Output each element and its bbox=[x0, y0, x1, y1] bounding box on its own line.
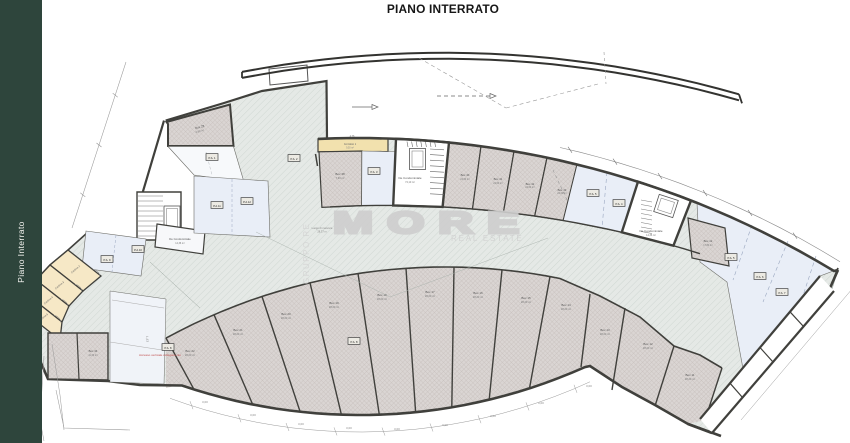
svg-text:3,00: 3,00 bbox=[298, 422, 304, 426]
svg-text:28,20 m²: 28,20 m² bbox=[643, 346, 653, 350]
svg-text:74,10 m²: 74,10 m² bbox=[405, 181, 415, 184]
svg-text:Box 22: Box 22 bbox=[185, 349, 195, 353]
svg-text:GRUPPO RE: GRUPPO RE bbox=[302, 222, 311, 284]
svg-text:De Condominiale: De Condominiale bbox=[169, 237, 191, 241]
svg-text:Box 21: Box 21 bbox=[233, 328, 243, 332]
svg-text:Box 12: Box 12 bbox=[643, 342, 653, 346]
svg-text:3,00: 3,00 bbox=[202, 400, 208, 404]
svg-text:1,43: 1,43 bbox=[145, 336, 150, 343]
svg-text:3,00: 3,00 bbox=[538, 401, 544, 405]
svg-text:28,20 m²: 28,20 m² bbox=[685, 377, 695, 381]
svg-text:Box 12: Box 12 bbox=[704, 239, 713, 243]
svg-text:28,20 m²: 28,20 m² bbox=[233, 332, 243, 336]
svg-text:3,00: 3,00 bbox=[250, 413, 256, 417]
svg-text:P.A. 7: P.A. 7 bbox=[779, 291, 786, 295]
svg-text:24,60 m²: 24,60 m² bbox=[460, 178, 470, 181]
svg-text:28,20 m²: 28,20 m² bbox=[329, 305, 339, 309]
svg-text:Corridoio 1: Corridoio 1 bbox=[344, 143, 357, 146]
svg-text:24,60 m²: 24,60 m² bbox=[557, 192, 567, 195]
svg-text:4,76: 4,76 bbox=[350, 135, 355, 138]
svg-text:Box 16: Box 16 bbox=[473, 291, 483, 295]
svg-text:Box 15: Box 15 bbox=[521, 296, 531, 300]
svg-text:P.A. 2: P.A. 2 bbox=[291, 157, 298, 161]
svg-text:28,20 m²: 28,20 m² bbox=[377, 297, 387, 301]
svg-text:14,36 m²: 14,36 m² bbox=[175, 242, 185, 245]
svg-text:3,00: 3,00 bbox=[586, 384, 592, 388]
svg-text:Box 14: Box 14 bbox=[561, 303, 571, 307]
svg-text:11,30 m²: 11,30 m² bbox=[88, 354, 97, 357]
svg-text:P.A. 5: P.A. 5 bbox=[590, 192, 597, 196]
svg-text:28,20 m²: 28,20 m² bbox=[185, 353, 195, 357]
svg-text:P.A. 4: P.A. 4 bbox=[616, 202, 623, 206]
svg-text:14,36 m²: 14,36 m² bbox=[646, 234, 656, 237]
svg-text:Box 41: Box 41 bbox=[494, 177, 503, 181]
svg-text:Luogo di manovra: Luogo di manovra bbox=[312, 226, 333, 230]
svg-text:28,20 m²: 28,20 m² bbox=[600, 332, 610, 336]
svg-text:P.A. 8: P.A. 8 bbox=[165, 346, 172, 350]
svg-text:7,90 m²: 7,90 m² bbox=[336, 176, 345, 180]
svg-text:P.A. 5: P.A. 5 bbox=[728, 256, 735, 260]
svg-text:P.A. 8: P.A. 8 bbox=[351, 340, 358, 344]
svg-text:28,20 m²: 28,20 m² bbox=[473, 295, 483, 299]
svg-text:Box 11: Box 11 bbox=[685, 373, 694, 377]
svg-text:3,00: 3,00 bbox=[394, 427, 400, 431]
svg-text:Box 19: Box 19 bbox=[329, 301, 339, 305]
svg-text:De Condominiale: De Condominiale bbox=[398, 176, 421, 180]
svg-text:Box 17: Box 17 bbox=[425, 290, 435, 294]
svg-text:P.A.12: P.A.12 bbox=[243, 200, 251, 204]
svg-text:REAL ESTATE: REAL ESTATE bbox=[451, 234, 524, 243]
svg-text:P.A. 9: P.A. 9 bbox=[104, 258, 111, 262]
svg-text:17,80 m²: 17,80 m² bbox=[703, 244, 713, 247]
svg-text:P.A. 6: P.A. 6 bbox=[757, 275, 764, 279]
svg-text:Box 20: Box 20 bbox=[281, 312, 291, 316]
svg-text:3,00: 3,00 bbox=[442, 423, 448, 427]
svg-text:Box 38: Box 38 bbox=[335, 172, 345, 176]
svg-text:Box 13: Box 13 bbox=[600, 328, 610, 332]
svg-text:Box 34: Box 34 bbox=[89, 349, 98, 353]
svg-text:24,60 m²: 24,60 m² bbox=[525, 186, 535, 189]
svg-text:Accesso verticale collegamento: Accesso verticale collegamento bbox=[139, 353, 181, 357]
svg-text:3,00: 3,00 bbox=[346, 426, 352, 430]
svg-text:9,50 m²: 9,50 m² bbox=[346, 147, 354, 150]
svg-text:28,20 m²: 28,20 m² bbox=[281, 316, 291, 320]
svg-text:De Condominiale: De Condominiale bbox=[639, 229, 662, 233]
svg-text:P.A.11: P.A.11 bbox=[213, 204, 221, 208]
svg-text:24,60 m²: 24,60 m² bbox=[493, 182, 503, 185]
svg-text:3,00: 3,00 bbox=[490, 414, 496, 418]
svg-text:28,37 m: 28,37 m bbox=[317, 229, 326, 233]
svg-text:28,20 m²: 28,20 m² bbox=[561, 307, 571, 311]
svg-text:28,20 m²: 28,20 m² bbox=[521, 300, 531, 304]
svg-text:P.A. 1: P.A. 1 bbox=[209, 156, 216, 160]
svg-text:Box 40: Box 40 bbox=[461, 173, 470, 177]
svg-text:P.A. 3: P.A. 3 bbox=[371, 170, 378, 174]
svg-text:P.A.10: P.A.10 bbox=[134, 248, 142, 252]
svg-text:28,20 m²: 28,20 m² bbox=[425, 294, 435, 298]
